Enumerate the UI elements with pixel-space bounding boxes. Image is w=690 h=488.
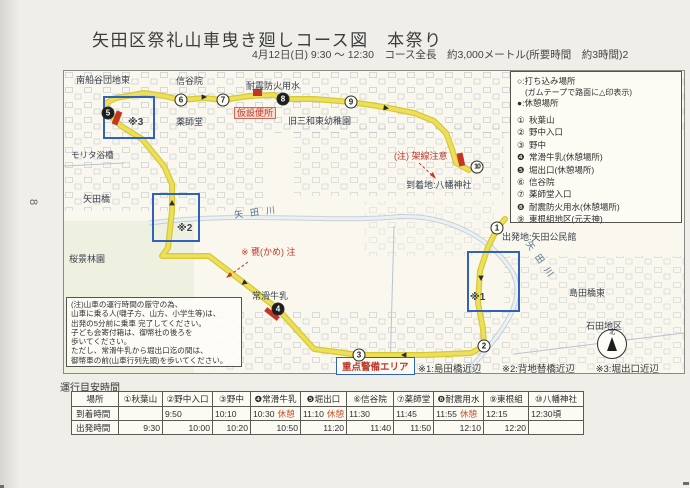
map-label-tokoname-milk: 常滑牛乳 [252,291,288,301]
arrival-time: 11:55 [436,409,457,419]
arrival-cell: 9:50 [163,407,213,421]
map-label-yakushido: 薬師堂 [176,117,203,127]
map-label-morita: モリタ浴槽 [71,150,114,160]
map-label-kyu-sanwa-kindergarten: 旧三和東幼稚園 [288,116,351,126]
map-label-area1: ※1 [470,293,485,303]
legend-item: ❺堀出口(休憩場所) [517,164,675,176]
legend-item: ①秋葉山 [517,114,675,126]
legend-item: ❹常滑牛乳(休憩場所) [517,151,675,163]
departure-cell: 10:20 [213,421,251,435]
schedule-header-cell: ①秋葉山 [119,392,163,407]
legend-label: 東根組地区(元天神) [529,214,603,224]
break-tag: 休憩 [327,409,344,419]
route-point-9: 9 [345,96,358,109]
legend-items: ①秋葉山 ②野中入口 ③野中 ❹常滑牛乳(休憩場所) ❺堀出口(休憩場所) ⑥信… [517,114,675,226]
scanned-page: 8 矢田区祭礼山車曳き廻しコース図 本祭り 4月12日(日) 9:30 ～ 12… [0,0,690,488]
departure-cell: 11:50 [394,421,434,435]
legend-item: ③野中 [517,139,675,151]
security-area-notes: ※1:島田橋近辺 ※2:背地替橋近辺 ※3:堀出口近辺 [418,361,677,375]
arrival-cell: 10:10 [213,407,251,421]
arrival-row-label: 到着時間 [72,407,119,421]
security-area-legend: 重点警備エリア [336,357,415,375]
schedule-header-cell: ⑦薬師堂 [394,392,434,407]
schedule-header-cell: ⑥信谷院 [347,392,394,407]
arrival-time: 11:10 [303,409,324,419]
legend-label: 信谷院 [529,177,555,187]
note-line: 山車に乗る人(囃子方、山方、小学生等)は、 [71,309,237,318]
legend-item: ⑦薬師堂入口 [517,188,675,200]
legend-num: ③ [517,139,529,151]
schedule-arrival-row: 到着時間 9:50 10:10 10:30休憩 11:10休憩 11:30 11… [72,407,584,421]
legend-item: ②野中入口 [517,126,675,138]
legend-item: ❽耐震防火用水(休憩場所) [517,201,675,213]
map-label-kame-note: ※ 甕(かめ) 注 [241,247,296,257]
note-line: 御幣車の前(山車行列先頭)を歩いてください。 [71,356,237,365]
legend-num: ⑨ [517,213,529,225]
legend-label: 秋葉山 [529,115,555,125]
scan-artifact [683,482,689,485]
note-line: 子ども会寄付箱は、御幣社の後ろを [71,328,237,337]
schedule-header-cell: 場所 [72,392,119,407]
map-label-yatabashi: 矢田橋 [83,194,110,204]
departure-cell: 11:40 [347,421,394,435]
legend-item: ⑥信谷院 [517,176,675,188]
map-label-kasen-warning: (注) 架線注意 [394,151,448,161]
security-area-box-2 [152,193,200,242]
legend-line-tape: (ガムテープで路面に△印表示) [517,87,675,98]
map-legend: ○:打ち込み場所 (ガムテープで路面に△印表示) ●:休憩場所 ①秋葉山 ②野中… [510,71,682,223]
departure-cell: 12:20 [484,421,529,435]
map-label-minamifunatani: 南船谷団地東 [76,75,130,85]
compass-rose: 北 [597,329,627,359]
legend-line-rest: ●:休憩場所 [517,98,675,109]
arrival-cell: 11:55休憩 [434,407,484,421]
route-point-7: 7 [217,94,230,107]
legend-num: ❹ [517,151,529,163]
route-point-6: 6 [175,94,188,107]
route-point-2: 2 [478,340,491,353]
arrival-time: 9:50 [165,409,182,419]
map-label-departure-kominkan: 出発地:矢田公民館 [502,232,577,242]
schedule-header-cell: ❽耐震用水 [434,392,484,407]
arrival-time: 11:30 [349,409,370,419]
legend-line-uchikomi: ○:打ち込み場所 [517,76,675,87]
note-line: ただし、常滑牛乳から堀出口迄の間は、 [71,346,237,355]
legend-label: 堀出口(休憩場所) [529,165,594,175]
arrival-time: 11:45 [396,409,417,419]
legend-num: ⑦ [517,188,529,200]
legend-label: 野中 [529,140,546,150]
legend-num: ① [517,114,529,126]
legend-label: 耐震防火用水(休憩場所) [529,202,620,212]
arrival-cell: 11:45 [394,407,434,421]
departure-cell: 9:30 [119,421,163,435]
operation-note-box: (注)山車の運行時間の厳守の為、 山車に乗る人(囃子方、山方、小学生等)は、 出… [66,297,242,367]
map-label-arrival-hachiman: 到着地:八幡神社 [406,180,472,190]
arrival-cell: 12:15 [484,407,529,421]
map-label-shimadabashi-higashi: 島田橋東 [569,288,605,298]
route-point-4: 4 [272,303,285,316]
schedule-header-cell: ⑩八幡神社 [529,392,584,407]
arrival-cell: 12:30頃 [529,407,584,421]
arrival-time: 10:10 [215,409,237,419]
departure-cell: 11:20 [301,421,347,435]
legend-num: ❽ [517,201,529,213]
legend-item: ⑨東根組地区(元天神) [517,213,675,225]
note-line: 出発の5分前に乗車 完了してください。 [71,319,237,328]
legend-label: 薬師堂入口 [529,189,572,199]
schedule-header-cell: ❹常滑牛乳 [251,392,301,407]
schedule-header-cell: ⑨東根組 [484,392,529,407]
compass-north-label: 北 [598,330,626,337]
map-label-kasetsu-benjo: 仮設便所 [234,107,276,119]
course-map: 南船谷団地東 信谷院 耐震防火用水 仮設便所 旧三和東幼稚園 薬師堂 モリタ浴槽… [63,70,685,374]
arrival-time: 12:15 [486,409,508,419]
route-point-8: 8 [277,93,290,106]
arrival-time: 12:30頃 [531,409,561,419]
arrival-cell [119,407,163,421]
schedule-table: 場所 ①秋葉山 ②野中入口 ③野中 ❹常滑牛乳 ❺堀出口 ⑥信谷院 ⑦薬師堂 ❽… [71,391,584,435]
map-label-shinkokuin: 信谷院 [176,76,203,86]
arrival-cell: 11:10休憩 [301,407,347,421]
security-note-1: ※1:島田橋近辺 [418,364,481,375]
route-point-5: 5 [102,107,115,120]
departure-cell: 10:00 [163,421,213,435]
departure-cell [529,421,584,435]
security-note-2: ※2:背地替橋近辺 [502,364,575,375]
departure-cell: 10:50 [251,421,301,435]
schedule-header-row: 場所 ①秋葉山 ②野中入口 ③野中 ❹常滑牛乳 ❺堀出口 ⑥信谷院 ⑦薬師堂 ❽… [72,392,584,407]
note-line: (注)山車の運行時間の厳守の為、 [71,300,237,309]
schedule-header-cell: ②野中入口 [163,392,213,407]
legend-label: 常滑牛乳(休憩場所) [529,152,603,162]
map-label-taishin-bosui: 耐震防火用水 [246,81,300,91]
break-tag: 休憩 [278,409,295,419]
arrival-time: 10:30 [253,409,275,419]
map-label-sakura-park: 桜景林園 [69,254,105,264]
scan-edge-shading [0,0,20,488]
schedule-header-cell: ③野中 [213,392,251,407]
break-tag: 休憩 [460,409,477,419]
departure-row-label: 出発時間 [72,421,119,435]
arrival-cell: 11:30 [347,407,394,421]
schedule-departure-row: 出発時間 9:30 10:00 10:20 10:50 11:20 11:40 … [72,421,584,435]
departure-cell: 12:10 [434,421,484,435]
legend-num: ⑥ [517,176,529,188]
legend-num: ❺ [517,164,529,176]
map-label-area3: ※3 [128,118,143,128]
route-point-10: 10 [471,161,484,174]
schedule-header-cell: ❺堀出口 [301,392,347,407]
route-point-1: 1 [491,222,504,235]
page-subtitle: 4月12日(日) 9:30 ～ 12:30 コース全長 約3,000メートル(所… [252,47,628,62]
compass-arrow-icon [607,337,617,351]
legend-num: ② [517,126,529,138]
arrival-cell: 10:30休憩 [251,407,301,421]
route-point-3: 3 [353,349,366,362]
security-note-3: ※3:堀出口近辺 [596,364,659,375]
page-number: 8 [27,199,39,205]
map-label-area2: ※2 [177,224,192,234]
legend-label: 野中入口 [529,127,563,137]
